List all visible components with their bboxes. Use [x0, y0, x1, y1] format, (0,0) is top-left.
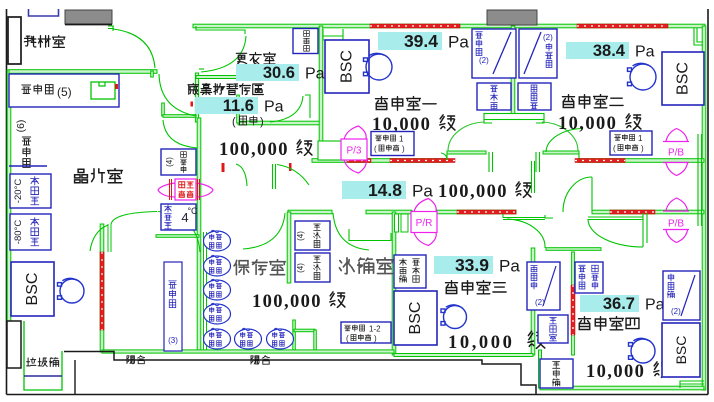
svg-text:(4): (4) — [296, 231, 305, 241]
svg-text:BSC: BSC — [675, 62, 692, 95]
svg-text:10,000: 10,000 — [558, 114, 617, 134]
svg-text:36.7: 36.7 — [603, 295, 635, 313]
svg-text:38.4: 38.4 — [593, 42, 626, 60]
svg-text:(4): (4) — [296, 263, 305, 273]
svg-text:33.9: 33.9 — [455, 255, 489, 275]
svg-text:(6): (6) — [15, 120, 27, 133]
svg-text:(5): (5) — [57, 85, 72, 99]
svg-text:): ) — [374, 334, 377, 343]
svg-text:(2): (2) — [479, 56, 489, 65]
svg-text:Pa: Pa — [412, 182, 433, 201]
svg-text:(2): (2) — [543, 33, 553, 42]
svg-text:-80°C: -80°C — [13, 220, 24, 245]
svg-text:): ) — [402, 145, 405, 154]
svg-text:BSC: BSC — [673, 336, 689, 365]
svg-text:-20°C: -20°C — [13, 179, 24, 204]
svg-text:(3): (3) — [168, 336, 178, 345]
svg-text:100,000: 100,000 — [252, 292, 322, 312]
svg-text:(: ( — [346, 334, 349, 343]
svg-text:30.6: 30.6 — [263, 64, 295, 82]
svg-text:P/B: P/B — [668, 219, 684, 230]
svg-text:Pa: Pa — [264, 99, 284, 116]
svg-text:(2): (2) — [671, 307, 681, 316]
svg-text:39.4: 39.4 — [404, 31, 438, 51]
svg-text:Pa: Pa — [448, 33, 469, 52]
svg-text:P/R: P/R — [416, 218, 433, 229]
svg-text:(: ( — [374, 145, 377, 154]
svg-text:Pa: Pa — [305, 66, 325, 83]
svg-text:100,000: 100,000 — [219, 140, 289, 160]
svg-text:P/B: P/B — [668, 148, 684, 159]
svg-text:°C: °C — [187, 206, 198, 216]
svg-text:P/3: P/3 — [346, 145, 361, 156]
svg-text:11.6: 11.6 — [223, 97, 254, 115]
svg-text:Pa: Pa — [645, 297, 665, 314]
svg-text:BSC: BSC — [407, 302, 424, 335]
svg-text:14.8: 14.8 — [368, 180, 402, 200]
svg-text:): ) — [260, 116, 264, 128]
svg-text:): ) — [641, 144, 644, 153]
svg-text:100,000: 100,000 — [438, 182, 508, 202]
svg-text:Pa: Pa — [499, 257, 520, 276]
svg-text:10,000: 10,000 — [586, 362, 645, 382]
svg-text:BSC: BSC — [339, 50, 356, 83]
svg-text:1: 1 — [638, 134, 643, 143]
svg-text:(: ( — [613, 144, 616, 153]
svg-text:1-2: 1-2 — [369, 325, 381, 334]
svg-text:Pa: Pa — [635, 44, 655, 61]
svg-text:(: ( — [232, 116, 236, 128]
svg-text:10,000: 10,000 — [448, 333, 514, 353]
svg-text:1: 1 — [399, 135, 404, 144]
svg-text:BSC: BSC — [24, 273, 41, 306]
svg-text:(4): (4) — [165, 157, 174, 167]
